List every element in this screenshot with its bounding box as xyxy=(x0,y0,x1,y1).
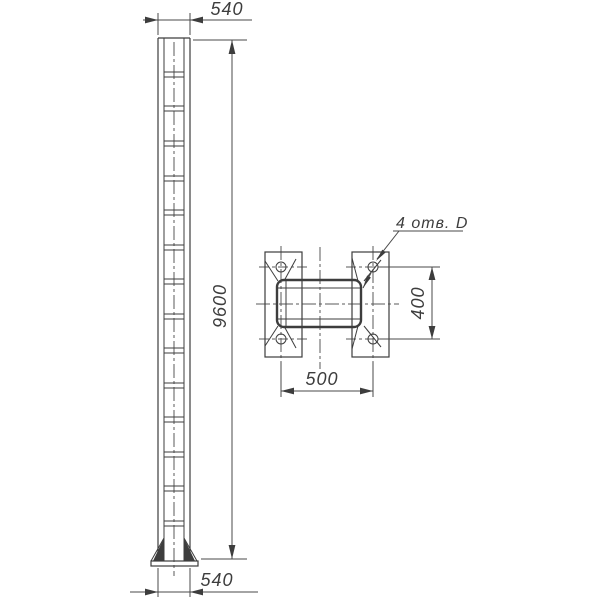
leader-arrow-2 xyxy=(363,276,371,289)
technical-drawing-canvas: 540 540 xyxy=(0,0,600,600)
dimension-plan-width: 500 xyxy=(281,362,373,397)
holes-note-text: 4 отв. D xyxy=(396,215,468,232)
gusset-rib xyxy=(265,326,278,346)
dimension-text-height: 9600 xyxy=(210,284,230,328)
dimension-top-width: 540 xyxy=(143,0,252,35)
leader-arrow xyxy=(376,250,386,261)
dimension-arrow-down xyxy=(429,326,436,339)
dimension-arrow xyxy=(281,388,294,395)
plan-view: 4 отв. D 500 400 xyxy=(256,215,468,397)
gusset-rib xyxy=(265,261,278,281)
dimension-arrow-down xyxy=(229,545,236,559)
bolt-holes xyxy=(276,262,378,344)
dimension-text-top-width: 540 xyxy=(210,0,243,19)
gusset-rib xyxy=(352,326,358,349)
dimension-text-plan-width: 500 xyxy=(305,369,338,389)
dimension-height: 9600 xyxy=(193,40,247,559)
column-shaft xyxy=(158,38,190,576)
dimension-arrow xyxy=(190,17,203,24)
dimension-arrow xyxy=(145,17,158,24)
front-elevation-view: 540 540 xyxy=(130,0,258,597)
dimension-text-holes-vertical: 400 xyxy=(408,286,428,319)
gusset-rib xyxy=(284,259,296,281)
gusset-rib xyxy=(352,258,358,281)
dimension-arrow-up xyxy=(429,267,436,280)
dimension-arrow xyxy=(360,388,373,395)
dimension-bottom-width: 540 xyxy=(130,568,258,597)
dimension-arrow xyxy=(145,589,158,596)
dimension-text-bottom-width: 540 xyxy=(200,570,233,590)
dimension-arrow-up xyxy=(229,40,236,54)
